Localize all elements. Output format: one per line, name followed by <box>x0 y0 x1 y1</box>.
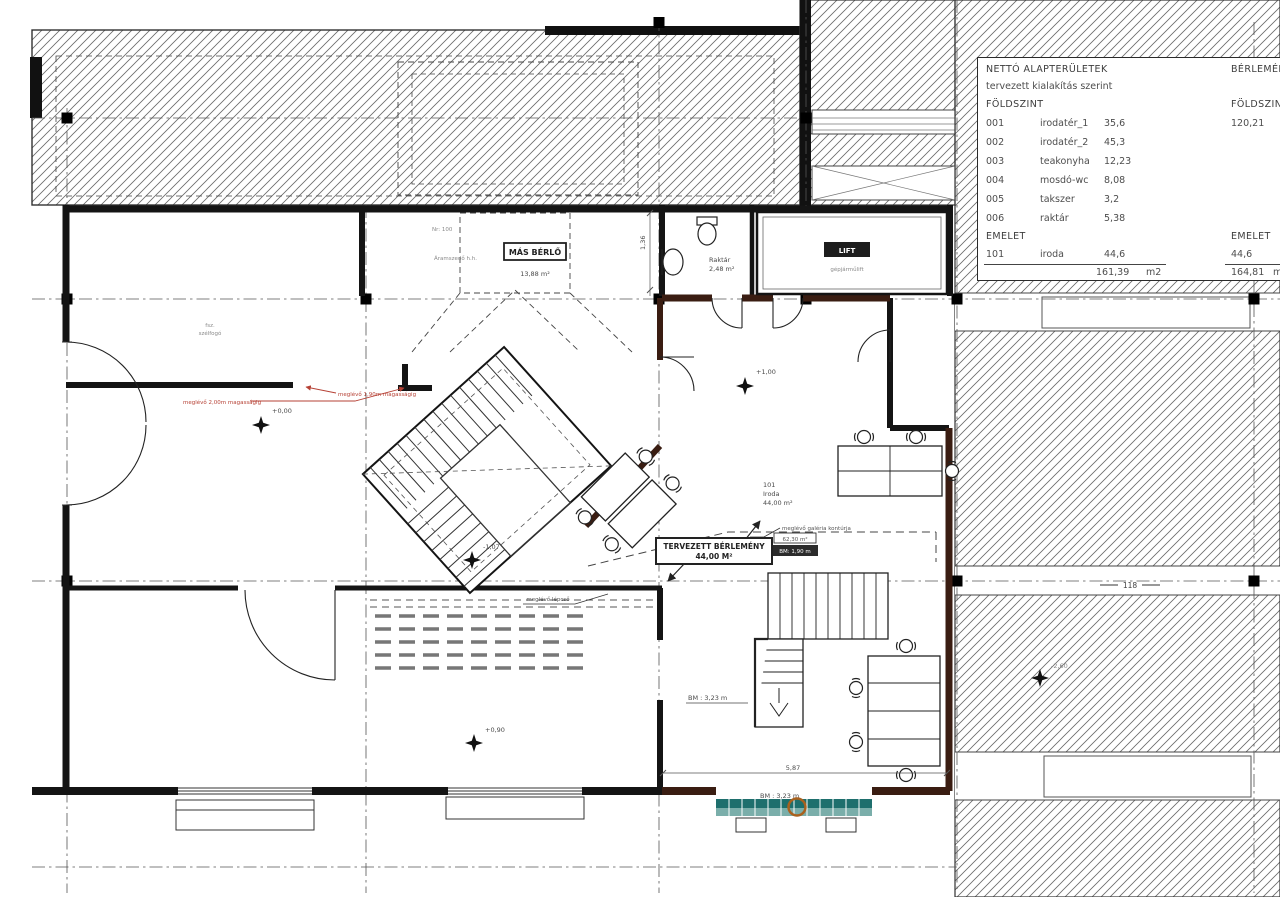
legend-groundfloor: FÖLDSZINT <box>986 99 1043 110</box>
lift-label: LIFT <box>839 247 856 255</box>
axis-118-label: 118 <box>1123 581 1138 590</box>
room101-num: 101 <box>763 481 775 489</box>
area-legend-table: NETTÓ ALAPTERÜLETEK BÉRLEMÉNY tervezett … <box>977 57 1280 281</box>
gallery-val1: 62,30 m² <box>782 536 807 543</box>
elev-0: +0,00 <box>272 407 292 415</box>
red-note-1: meglévő 2,00m magasságig <box>183 399 261 406</box>
szelfogo-line2: szélfogó <box>199 330 222 337</box>
room101-name: Iroda <box>763 490 780 498</box>
elev-m26: -2,60 <box>1051 662 1068 670</box>
red-note-2: meglévő 1,90m magasságig <box>338 391 416 398</box>
desk-group-top-right <box>838 431 959 497</box>
red-annotations: meglévő 2,00m magasságig meglévő 1,90m m… <box>183 387 416 406</box>
legend-floor: EMELET <box>986 231 1026 242</box>
dim-side: 1,36 <box>639 210 653 296</box>
legend-right-total: 164,81 <box>1231 267 1264 278</box>
tervezett-berlemeny-label: TERVEZETT BÉRLEMÉNY 44,00 M² <box>656 538 772 581</box>
svg-text:meglévő lépcső: meglévő lépcső <box>526 596 570 603</box>
raktar-area: 2,48 m² <box>709 265 735 273</box>
legend-subtitle: tervezett kialakítás szerint <box>986 81 1112 92</box>
mas-berlo-label: MÁS BÉRLŐ 13,88 m² <box>504 243 566 278</box>
legend-total: 161,39 <box>1096 267 1129 278</box>
raktar-name: Raktár <box>709 256 731 264</box>
mas-berlo-area: 13,88 m² <box>520 270 550 278</box>
legend-right-total-unit: m2 <box>1273 267 1280 278</box>
storefront-strip <box>716 799 872 833</box>
legend-floor-right: EMELET <box>1231 231 1271 242</box>
gallery-note-text: meglévő galéria kontúrja <box>782 525 851 532</box>
bm-stair-dim: BM : 3,23 m <box>686 694 748 703</box>
mas-berlo-zone <box>412 213 632 352</box>
room101-area: 44,00 m² <box>763 499 793 507</box>
dim-front: 5,87 <box>786 764 800 772</box>
legend-groundfloor-right-total: 120,21 <box>1231 118 1264 129</box>
desk-group-bottom-right <box>850 640 941 782</box>
gallery-val2: BM: 1,90 m <box>779 549 810 555</box>
szelfogo-line1: fsz. <box>205 323 215 329</box>
legend-total-rule-right <box>1225 264 1280 265</box>
elev-m107: -1,07 <box>483 543 500 551</box>
legend-right-title: BÉRLEMÉNY <box>1231 64 1280 75</box>
floor-plan-sheet: MÁS BÉRLŐ 13,88 m² Raktár 2,48 m² 1,36 <box>0 0 1280 897</box>
hatched-neighbour-block-topleft <box>30 26 803 205</box>
mas-berlo-text: MÁS BÉRLŐ <box>509 246 562 257</box>
aramszedo-label: Áramszedő h.h. <box>434 255 477 262</box>
liftplatform-dashes <box>375 616 585 668</box>
elev-1: +1,00 <box>756 368 776 376</box>
svg-text:1,36: 1,36 <box>639 236 647 250</box>
lift-room: LIFT gépjárműlift <box>757 212 947 294</box>
central-staircase <box>363 347 611 593</box>
tervezett-area: 44,00 M² <box>695 552 732 561</box>
tervezett-title: TERVEZETT BÉRLEMÉNY <box>663 542 765 551</box>
hatched-party-wall-strip <box>800 0 955 209</box>
svg-text:BM : 3,23 m: BM : 3,23 m <box>688 694 727 702</box>
dashed-edge <box>370 600 655 607</box>
meglevo-lepcso-note: meglévő lépcső <box>523 594 608 604</box>
legend-total-unit: m2 <box>1146 267 1161 278</box>
legend-groundfloor-right: FÖLDSZINT <box>1231 99 1280 110</box>
legend-floor-right-total: 44,6 <box>1231 249 1252 260</box>
nr-label: Nr: 100 <box>432 227 453 233</box>
elev-09: +0,90 <box>485 726 505 734</box>
legend-title: NETTÓ ALAPTERÜLETEK <box>986 64 1108 75</box>
lift-sub-label: gépjárműlift <box>830 266 864 273</box>
legend-total-rule <box>984 264 1166 265</box>
